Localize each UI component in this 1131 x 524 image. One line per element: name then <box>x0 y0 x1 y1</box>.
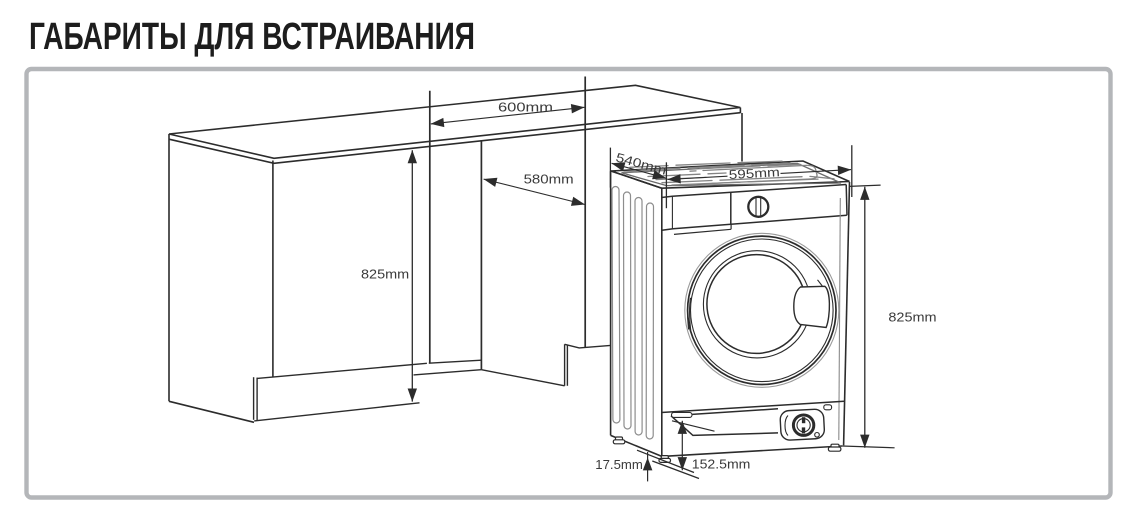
svg-text:825mm: 825mm <box>361 268 409 282</box>
svg-text:ГАБАРИТЫ ДЛЯ ВСТРАИВАНИЯ: ГАБАРИТЫ ДЛЯ ВСТРАИВАНИЯ <box>29 16 475 58</box>
svg-text:580mm: 580mm <box>524 172 574 186</box>
svg-text:595mm: 595mm <box>728 165 780 182</box>
svg-text:152.5mm: 152.5mm <box>692 458 751 472</box>
svg-text:825mm: 825mm <box>888 311 936 325</box>
svg-text:600mm: 600mm <box>498 101 553 115</box>
svg-text:17.5mm: 17.5mm <box>595 458 643 472</box>
